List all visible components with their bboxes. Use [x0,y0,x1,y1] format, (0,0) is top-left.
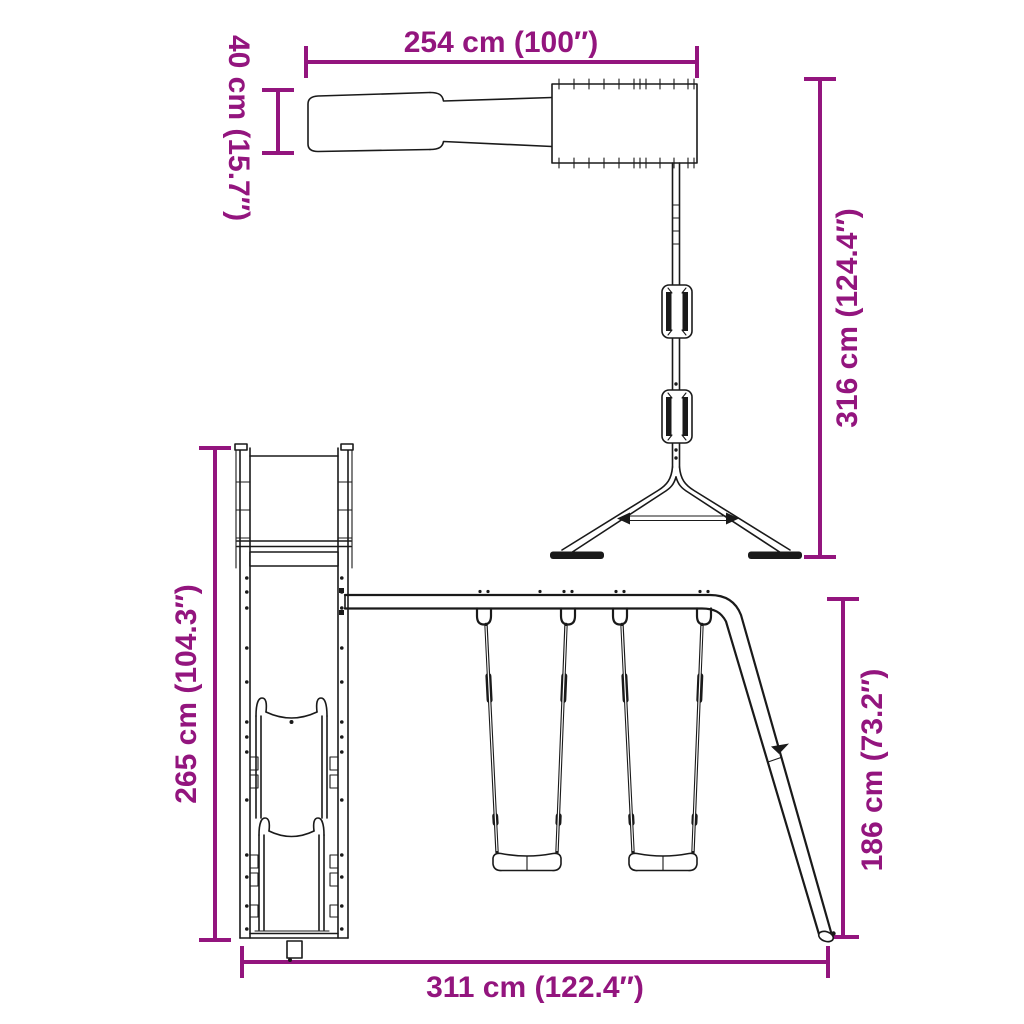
leg-foot [817,930,834,944]
swing-ropes [622,625,702,853]
slide-top-view [308,93,552,152]
dimension-height: 265 cm (104.3″) [170,448,231,940]
swing-1 [477,590,575,871]
tower-front-view [235,444,353,938]
dimension-overall-depth: 316 cm (124.4″) [804,79,864,557]
swing-beam-front-view [339,588,836,943]
leg-joint-marker [768,744,789,763]
dimension-overall-width: 254 cm (100″) [306,26,697,78]
overall-width-label: 254 cm (100″) [404,26,599,59]
swing-seat [493,853,561,870]
height-label: 265 cm (104.3″) [170,584,203,804]
platform-deck [552,84,697,163]
swing-seat-top-view-1 [662,285,692,338]
left-foot-plate [550,552,604,560]
swing-seat [629,853,697,870]
slide-upper-section [256,698,327,818]
slide-foot [287,941,302,958]
playset-dimension-diagram: 254 cm (100″) 40 cm (15.7″) 316 cm (124.… [0,0,1024,1024]
swing-frame-height-label: 186 cm (73.2″) [856,669,889,872]
slide-lower-section [255,818,329,931]
dimension-swing-frame-height: 186 cm (73.2″) [827,599,889,937]
overall-depth-label: 316 cm (124.4″) [831,208,864,428]
swing-seat-top-view-2 [662,390,692,443]
platform-top-view [552,79,697,168]
front-overall-width-label: 311 cm (122.4″) [426,971,644,1004]
right-foot-plate [748,552,802,560]
dimension-slide-width: 40 cm (15.7″) [222,35,294,221]
swing-2 [613,590,711,871]
dimension-front-overall-width: 311 cm (122.4″) [242,946,828,1004]
swing-ropes [486,625,566,853]
platform-board [250,552,338,566]
slide-front-view [255,698,329,962]
top-view: 254 cm (100″) 40 cm (15.7″) 316 cm (124.… [222,26,864,559]
slide-width-label: 40 cm (15.7″) [222,35,255,221]
diagram-canvas: 254 cm (100″) 40 cm (15.7″) 316 cm (124.… [0,0,1024,1024]
front-view: 265 cm (104.3″) 186 cm (73.2″) 311 cm (1… [170,444,889,1004]
aframe-legs-top-view [550,467,802,559]
